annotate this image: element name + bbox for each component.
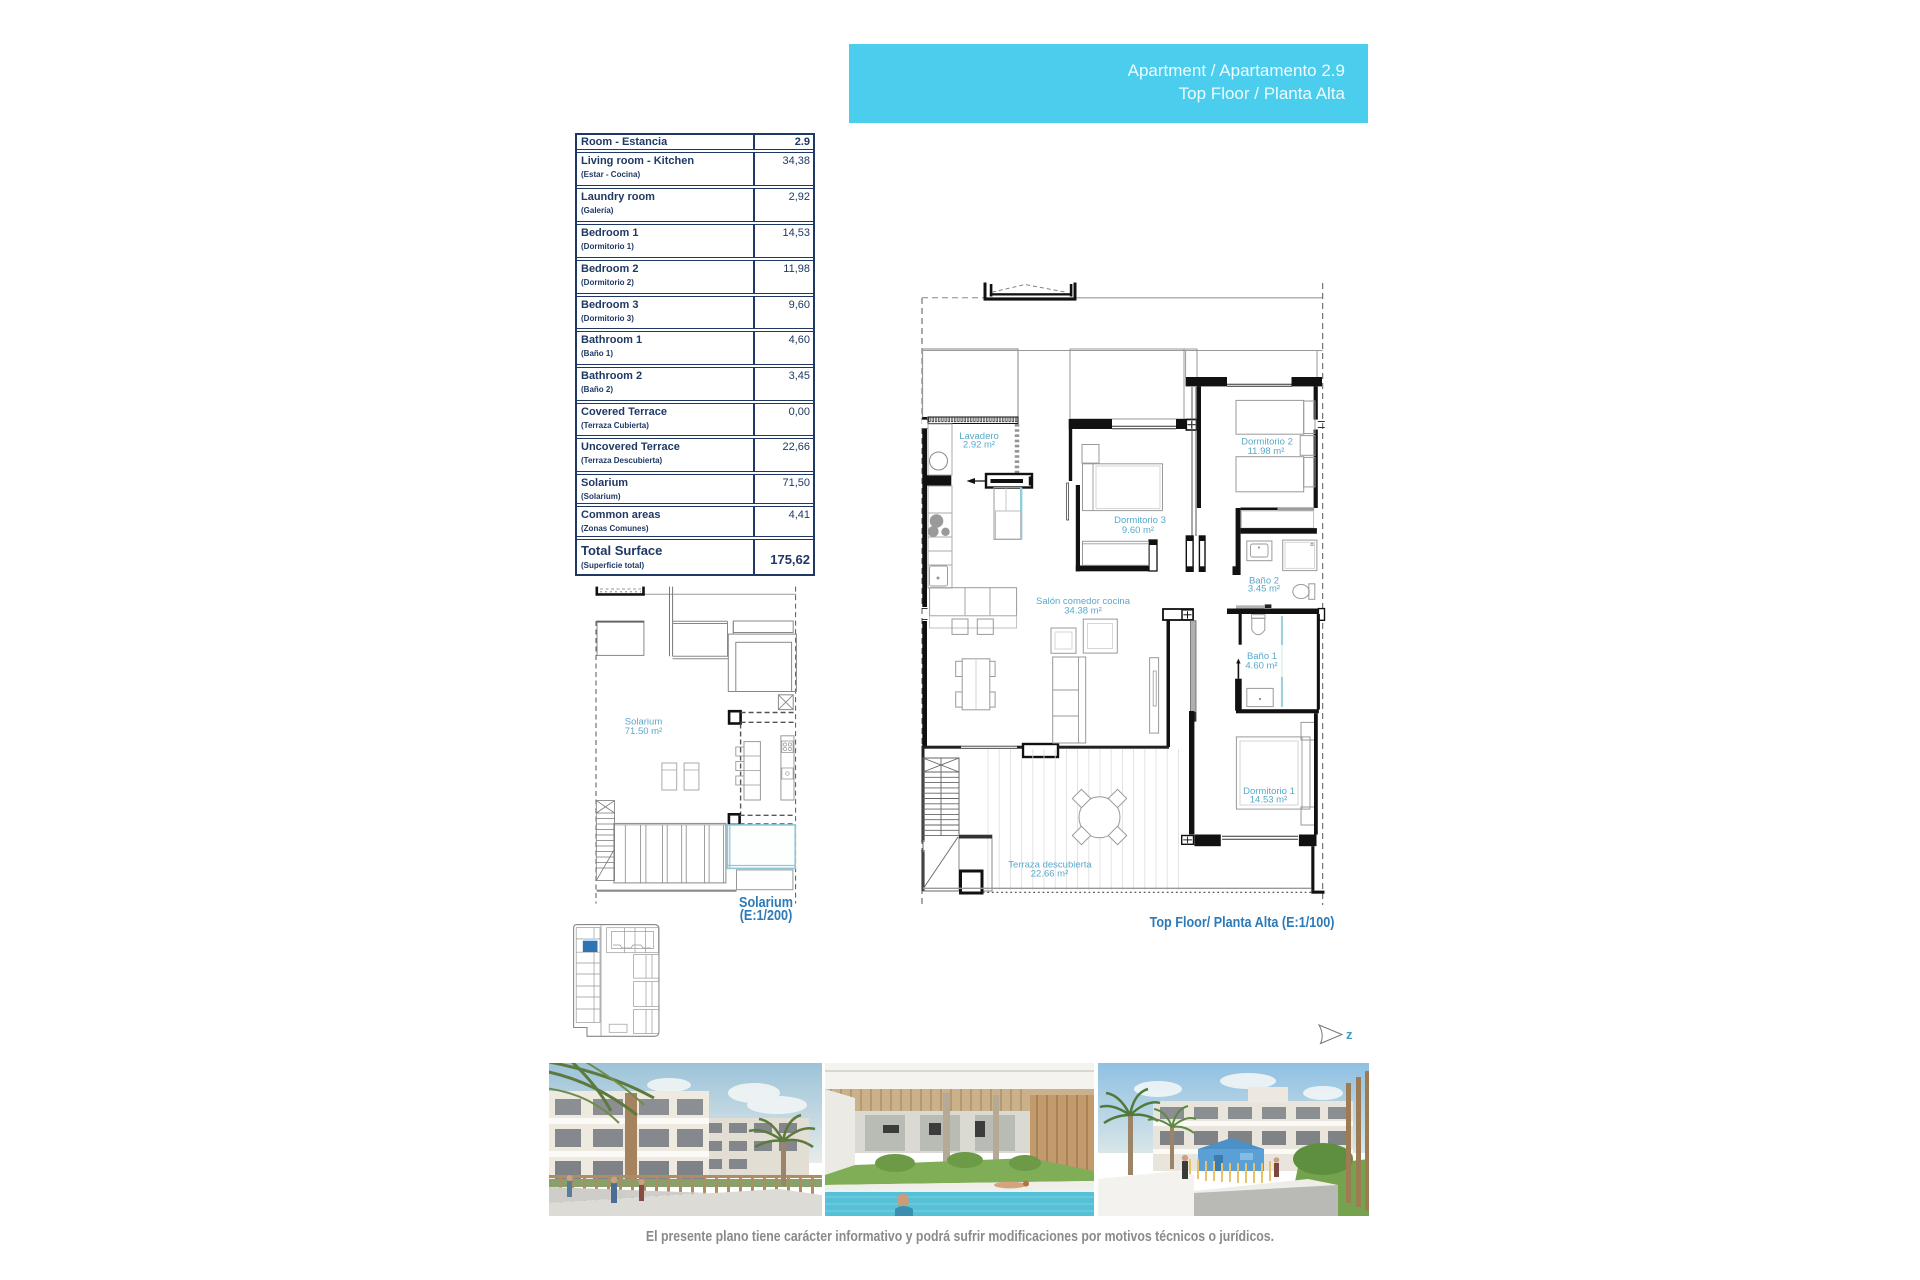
svg-text:71.50 m²: 71.50 m² — [625, 726, 663, 737]
svg-text:3.45 m²: 3.45 m² — [1248, 584, 1280, 595]
svg-text:9.60 m²: 9.60 m² — [1122, 525, 1154, 536]
svg-text:2.92 m²: 2.92 m² — [963, 440, 995, 451]
svg-text:34.38 m²: 34.38 m² — [1064, 606, 1102, 617]
svg-text:11.98 m²: 11.98 m² — [1248, 446, 1285, 457]
svg-text:14.53 m²: 14.53 m² — [1250, 795, 1288, 806]
svg-text:4.60 m²: 4.60 m² — [1245, 661, 1277, 672]
svg-text:z: z — [1346, 1027, 1353, 1042]
svg-text:22.66 m²: 22.66 m² — [1031, 869, 1069, 880]
